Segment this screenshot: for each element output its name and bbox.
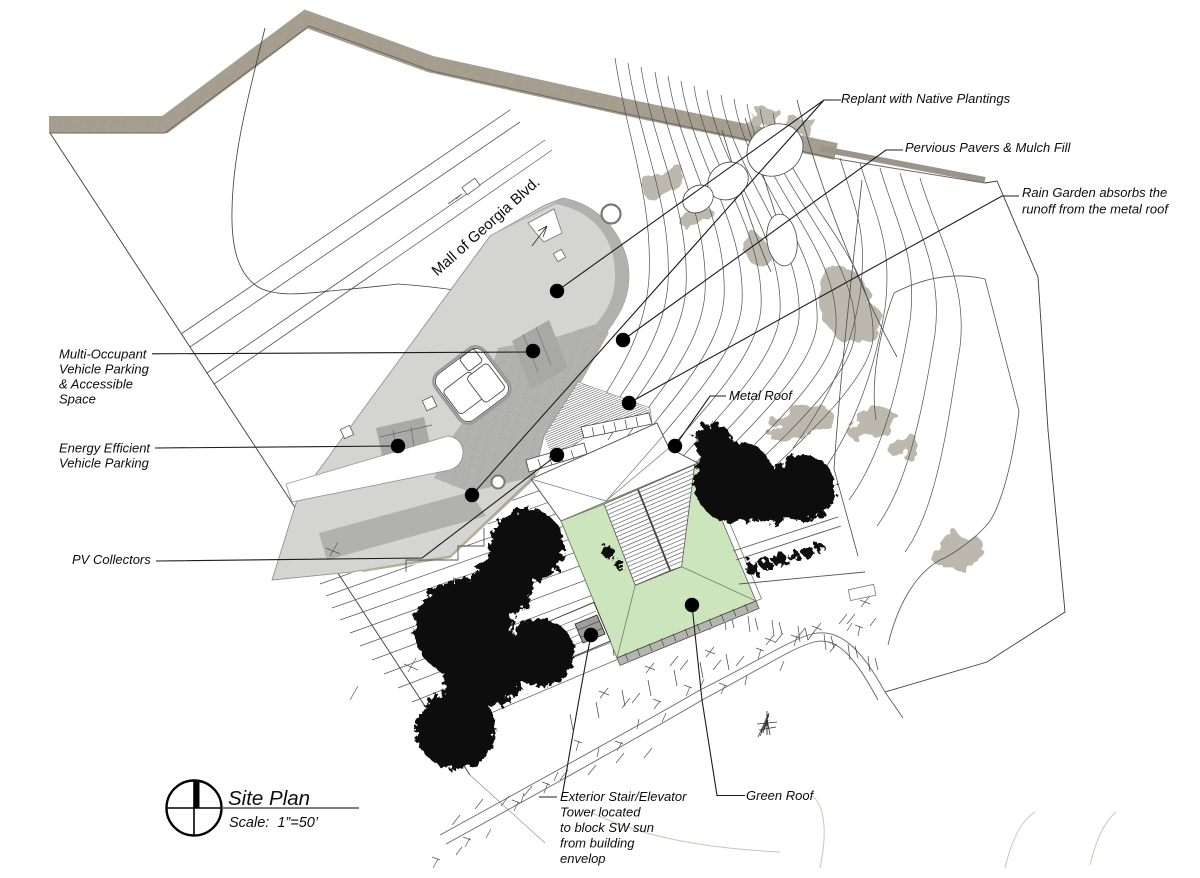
svg-text:Metal Roof: Metal Roof (729, 388, 793, 403)
svg-text:runoff from the metal roof: runoff from the metal roof (1022, 202, 1169, 217)
svg-text:to block SW sun: to block SW sun (560, 820, 654, 835)
svg-text:Replant with Native Plantings: Replant with Native Plantings (841, 91, 1011, 106)
svg-text:Green Roof: Green Roof (746, 788, 815, 803)
svg-text:Space: Space (59, 392, 96, 407)
svg-text:from building: from building (560, 836, 635, 851)
svg-text:& Accessible: & Accessible (59, 377, 133, 392)
svg-text:PV Collectors: PV Collectors (72, 552, 151, 567)
svg-text:Site Plan: Site Plan (228, 787, 310, 810)
svg-text:Tower located: Tower located (560, 805, 641, 820)
svg-text:Vehicle Parking: Vehicle Parking (59, 362, 150, 377)
svg-text:Scale: 1”=50’: Scale: 1”=50’ (229, 815, 319, 831)
svg-text:Exterior Stair/Elevator: Exterior Stair/Elevator (560, 789, 687, 804)
svg-text:Pervious Pavers & Mulch Fill: Pervious Pavers & Mulch Fill (905, 140, 1072, 155)
svg-text:envelop: envelop (560, 851, 606, 866)
svg-text:Rain Garden absorbs the: Rain Garden absorbs the (1022, 185, 1167, 200)
svg-text:Multi-Occupant: Multi-Occupant (59, 347, 148, 362)
svg-text:Energy Efficient: Energy Efficient (59, 441, 151, 456)
svg-text:Vehicle Parking: Vehicle Parking (59, 456, 150, 471)
